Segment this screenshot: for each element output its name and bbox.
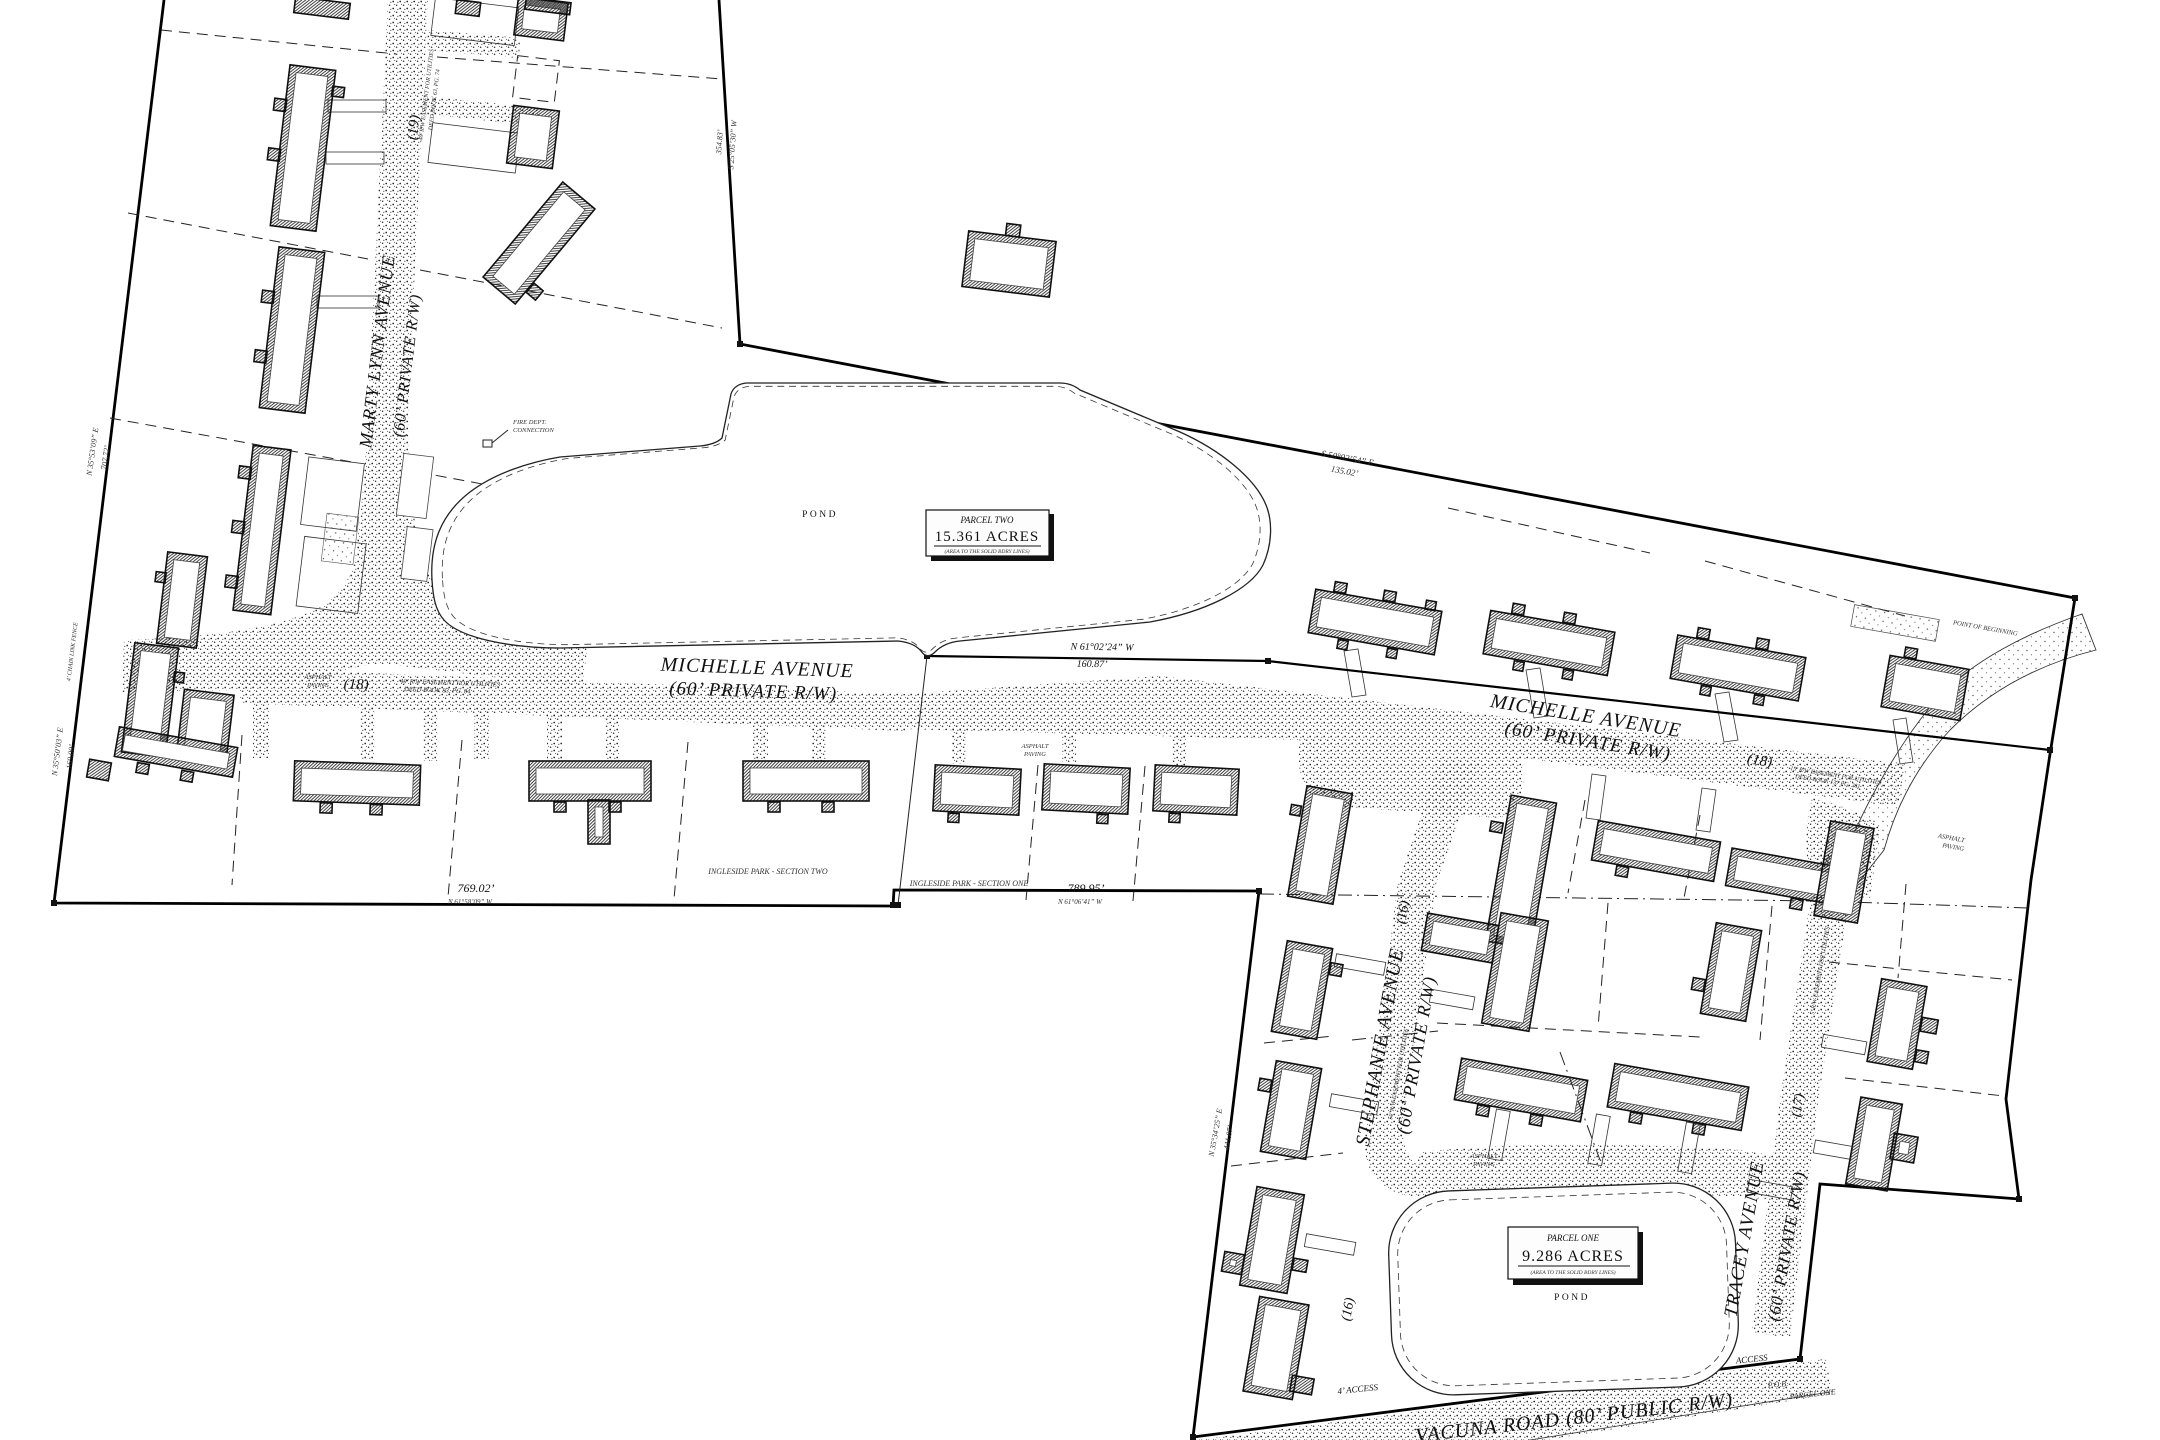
svg-text:789.95’: 789.95’ (1068, 881, 1105, 895)
svg-text:INGLESIDE PARK - SECTION ONE: INGLESIDE PARK - SECTION ONE (909, 879, 1029, 888)
svg-text:INGLESIDE PARK - SECTION TWO: INGLESIDE PARK - SECTION TWO (707, 867, 828, 876)
svg-text:354.83’: 354.83’ (714, 129, 725, 156)
svg-text:PAVING: PAVING (306, 682, 329, 689)
svg-text:ASPHALT: ASPHALT (1470, 1153, 1498, 1160)
svg-text:POND: POND (802, 510, 838, 520)
svg-text:PARCEL ONE: PARCEL ONE (1546, 1233, 1599, 1243)
svg-text:PAVING: PAVING (1023, 751, 1046, 758)
svg-text:160.87’: 160.87’ (1077, 659, 1109, 671)
svg-text:FIRE DEPT.: FIRE DEPT. (512, 419, 546, 426)
svg-text:ASPHALT: ASPHALT (304, 674, 332, 681)
svg-text:POND: POND (1554, 1293, 1590, 1303)
svg-text:15.361 ACRES: 15.361 ACRES (935, 529, 1040, 545)
svg-text:N 61°58’09” W: N 61°58’09” W (447, 898, 493, 906)
svg-text:(18): (18) (343, 677, 369, 694)
svg-text:9.286 ACRES: 9.286 ACRES (1522, 1248, 1624, 1265)
svg-text:(AREA TO THE SOLID BDRY LINES): (AREA TO THE SOLID BDRY LINES) (944, 548, 1029, 555)
svg-text:ASPHALT: ASPHALT (1021, 743, 1049, 750)
svg-text:CONNECTION: CONNECTION (513, 427, 554, 434)
svg-text:(AREA TO THE SOLID BDRY LINES): (AREA TO THE SOLID BDRY LINES) (1530, 1269, 1615, 1276)
svg-text:N 61°06’41” W: N 61°06’41” W (1057, 898, 1103, 906)
svg-text:PARCEL TWO: PARCEL TWO (960, 515, 1014, 525)
svg-text:769.02’: 769.02’ (458, 881, 495, 895)
svg-text:N 61°02’24” W: N 61°02’24” W (1070, 641, 1136, 653)
svg-text:PAVING: PAVING (1472, 1161, 1495, 1168)
